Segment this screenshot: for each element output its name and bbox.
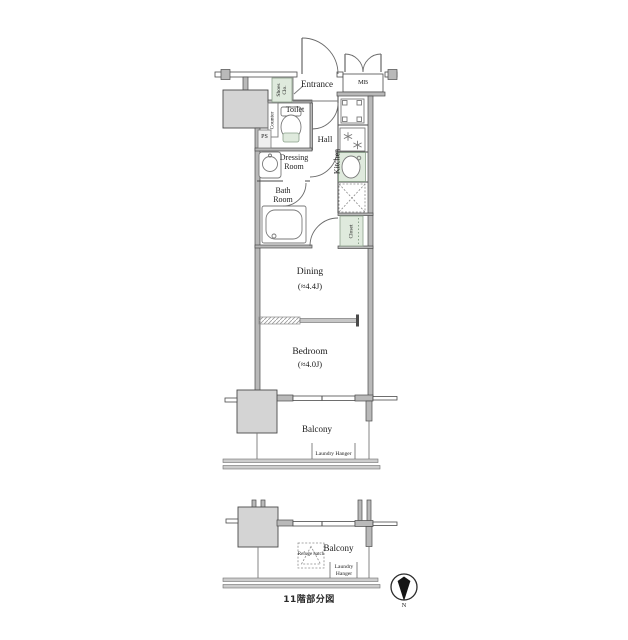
toilet-label: Toilet xyxy=(280,105,310,115)
floorplan-page: Entrance MB Shoes Clo. Counter Toilet PS… xyxy=(0,0,628,640)
compass-icon xyxy=(391,574,417,600)
pillar-lower-plan xyxy=(238,507,278,547)
pipe-space-label: PS xyxy=(258,133,271,142)
room-divider xyxy=(259,315,359,327)
upper-plan xyxy=(215,38,397,469)
bedroom-label: Bedroom xyxy=(279,347,341,359)
compass-north-label: N xyxy=(397,601,411,610)
washer-pan-fixture xyxy=(341,99,364,123)
floor-caption: 11階部分図 xyxy=(259,594,359,606)
bath-room-label: Bath Room xyxy=(266,187,300,205)
closet-label: Closet xyxy=(347,211,356,251)
pillar-bottom-left xyxy=(237,390,277,433)
laundry-hanger-label: Laundry Hanger xyxy=(315,449,352,461)
dining-size-label: (≈4.4J) xyxy=(279,281,341,292)
kitchen-label: Kitchen xyxy=(333,142,342,182)
lower-balcony-label: Balcony xyxy=(310,543,367,555)
sink-fixture xyxy=(339,153,366,182)
bathtub-fixture xyxy=(262,206,306,243)
bedroom-size-label: (≈4.0J) xyxy=(279,360,341,371)
entrance-door-arc xyxy=(302,38,338,74)
balcony-label: Balcony xyxy=(289,423,345,435)
dressing-room-label: Dressing Room xyxy=(274,153,314,173)
pillar-top-left xyxy=(223,90,268,128)
entrance-label: Entrance xyxy=(294,79,340,90)
meter-box-label: MB xyxy=(343,78,383,87)
dining-label: Dining xyxy=(279,266,341,278)
shoes-closet-label: Shoes Clo. xyxy=(271,80,293,100)
refrigerator-space xyxy=(339,184,365,212)
stove-fixture xyxy=(340,128,365,151)
lower-laundry-hanger-label: Laundry Hanger xyxy=(326,565,362,577)
